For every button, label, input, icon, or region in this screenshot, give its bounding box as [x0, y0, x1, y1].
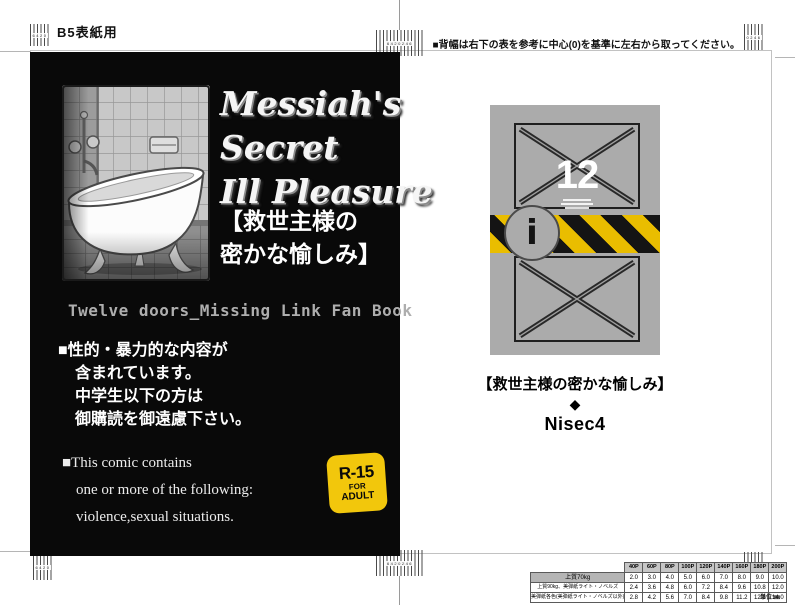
table-value-cell: 10.8 [751, 583, 769, 593]
table-value-cell: 7.0 [715, 573, 733, 583]
table-value-cell: 8.4 [697, 593, 715, 603]
trim-tick [0, 551, 30, 552]
warning-line: 含まれています。 [58, 362, 251, 385]
warning-line: 御購読を御遠慮下さい。 [58, 408, 251, 431]
cover-jp-title-line: 【救世主様の [220, 205, 381, 238]
content-warning-english: ■This comic contains one or more of the … [62, 450, 253, 531]
rating-sub-label: ADULT [341, 489, 375, 503]
front-cover: Messiah's Secret Ill Pleasure 【救世主様の 密かな… [30, 52, 400, 556]
table-value-cell: 4.0 [661, 573, 679, 583]
trim-tick [0, 51, 30, 52]
back-cover-jp-title: 【救世主様の密かな愉しみ】 [425, 373, 725, 394]
table-row: 上質70kg2.03.04.05.06.07.08.09.010.0 [531, 573, 787, 583]
gauge-digits: 6420 [32, 33, 49, 38]
info-icon: i [504, 205, 560, 261]
circle-name: Nisec4 [425, 414, 725, 435]
print-template-proof: B5表紙用 ■背幅は右下の表を参考に中心(0)を基準に左右から取ってください。 … [0, 0, 800, 605]
trim-tick [775, 545, 795, 546]
table-corner-cell [531, 563, 625, 573]
table-value-cell: 4.2 [643, 593, 661, 603]
template-size-label: B5表紙用 [57, 22, 118, 41]
table-value-cell: 4.8 [661, 583, 679, 593]
table-value-cell: 3.0 [643, 573, 661, 583]
table-value-cell: 9.8 [715, 593, 733, 603]
table-col-header: 40P [625, 563, 643, 573]
table-value-cell: 10.0 [769, 573, 787, 583]
spine-instruction-note: ■背幅は右下の表を参考に中心(0)を基準に左右から取ってください。 [433, 36, 740, 51]
table-col-header: 140P [715, 563, 733, 573]
table-value-cell: 11.2 [733, 593, 751, 603]
table-col-header: 200P [769, 563, 787, 573]
gauge-digits: 6420246 [386, 561, 414, 566]
cover-title-line: Messiah's [220, 82, 433, 126]
table-col-header: 180P [751, 563, 769, 573]
table-value-cell: 9.6 [733, 583, 751, 593]
unit-note: 単位:㎜ [760, 592, 780, 601]
table-value-cell: 6.0 [679, 583, 697, 593]
table-col-header: 160P [733, 563, 751, 573]
table-value-cell: 7.0 [679, 593, 697, 603]
table-value-cell: 2.8 [625, 593, 643, 603]
warning-line: one or more of the following: [62, 477, 253, 504]
gauge-digits: 6420246 [386, 41, 414, 46]
trim-tick [775, 57, 795, 58]
gauge-digits: 6420 [35, 565, 52, 570]
rating-label: R-15 [338, 462, 374, 482]
table-value-cell: 2.4 [625, 583, 643, 593]
warning-line: 中学生以下の方は [58, 385, 251, 408]
spine-center-mark-bottom [399, 576, 400, 605]
table-row-label: 上質70kg [531, 573, 625, 583]
placeholder-box-bottom [514, 256, 640, 342]
age-rating-badge: R-15 FOR ADULT [326, 452, 388, 514]
gauge-mark-bottom-left: 6420 [33, 554, 53, 580]
cover-title-line: Secret [220, 126, 433, 170]
back-cover-panel: 12 i [490, 105, 660, 355]
spine-width-table: 40P60P80P100P120P140P160P180P200P上質70kg2… [530, 562, 787, 603]
cover-title: Messiah's Secret Ill Pleasure [220, 82, 433, 214]
table-value-cell: 9.0 [751, 573, 769, 583]
table-value-cell: 3.6 [643, 583, 661, 593]
table-value-cell: 6.0 [697, 573, 715, 583]
table-value-cell: 8.0 [733, 573, 751, 583]
table-row-label: 上質90kg、美弾紙ライト・ノベルズ [531, 583, 625, 593]
spine-center-mark-top [399, 0, 400, 30]
table-value-cell: 7.2 [697, 583, 715, 593]
table-value-cell: 2.0 [625, 573, 643, 583]
cover-jp-title: 【救世主様の 密かな愉しみ】 [220, 205, 381, 271]
table-col-header: 120P [697, 563, 715, 573]
series-note: Twelve doors_Missing Link Fan Book [68, 301, 413, 320]
gauge-digits: 0246 [746, 35, 763, 40]
diamond-separator: ◆ [425, 396, 725, 413]
placeholder-box-top: 12 [514, 123, 640, 209]
content-warning-japanese: ■性的・暴力的な内容が 含まれています。 中学生以下の方は 御購読を御遠慮下さい… [58, 339, 251, 431]
cover-jp-title-line: 密かな愉しみ】 [220, 238, 381, 271]
table-value-cell: 5.6 [661, 593, 679, 603]
warning-line: ■性的・暴力的な内容が [58, 339, 251, 362]
table-value-cell: 12.0 [769, 583, 787, 593]
table-value-cell: 5.0 [679, 573, 697, 583]
table-value-cell: 8.4 [715, 583, 733, 593]
table-col-header: 60P [643, 563, 661, 573]
warning-line: violence,sexual situations. [62, 504, 253, 531]
table-row-label: 美弾紙各色(美弾紙ライト・ノベルズ以外) [531, 593, 625, 603]
gauge-mark-top-left: 6420 [30, 24, 50, 46]
warning-line: ■This comic contains [62, 450, 253, 477]
table-row: 美弾紙各色(美弾紙ライト・ノベルズ以外)2.84.25.67.08.49.811… [531, 593, 787, 603]
bathtub-illustration [62, 85, 210, 281]
page-count-label: 12 [516, 155, 638, 195]
table-col-header: 80P [661, 563, 679, 573]
gauge-mark-top-right: 0246 [744, 24, 764, 50]
table-row: 上質90kg、美弾紙ライト・ノベルズ2.43.64.86.07.28.49.61… [531, 583, 787, 593]
table-col-header: 100P [679, 563, 697, 573]
